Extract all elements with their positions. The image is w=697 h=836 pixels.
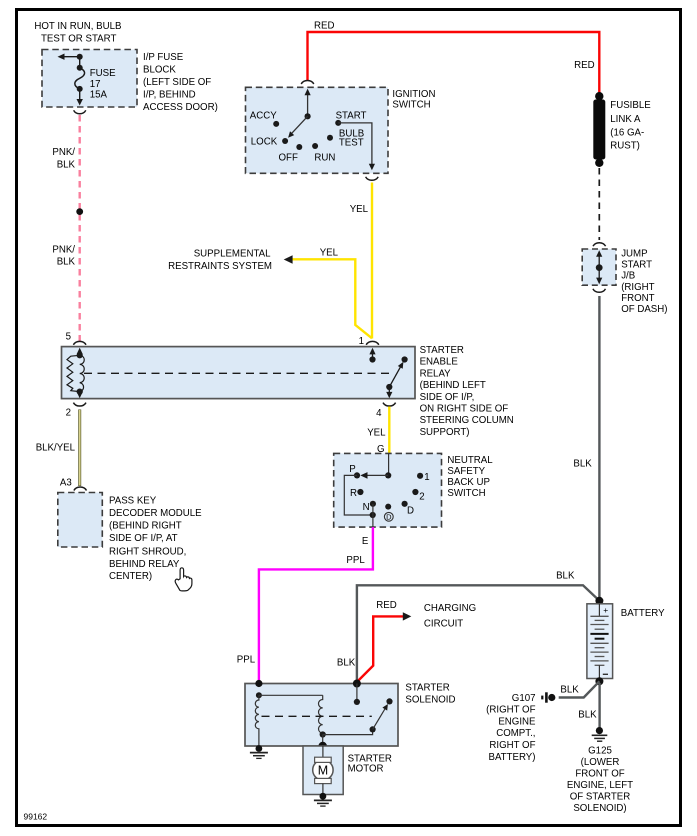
svg-text:R: R — [350, 488, 357, 499]
svg-text:(16 GA-: (16 GA- — [610, 127, 644, 138]
svg-text:PNK/: PNK/ — [52, 147, 75, 158]
svg-text:(LOWER: (LOWER — [581, 757, 620, 768]
svg-text:RED: RED — [376, 600, 396, 611]
svg-text:BLOCK: BLOCK — [143, 65, 176, 76]
svg-text:G107: G107 — [512, 693, 536, 704]
svg-text:(RIGHT: (RIGHT — [621, 282, 654, 293]
svg-text:CHARGING: CHARGING — [424, 603, 476, 614]
svg-text:DECODER MODULE: DECODER MODULE — [109, 508, 202, 519]
svg-text:ENGINE, LEFT: ENGINE, LEFT — [567, 780, 633, 791]
svg-text:BLK: BLK — [573, 459, 592, 470]
svg-text:M: M — [318, 763, 328, 777]
svg-text:D: D — [407, 506, 414, 517]
svg-text:SUPPLEMENTAL: SUPPLEMENTAL — [194, 248, 271, 259]
svg-text:YEL: YEL — [350, 204, 369, 215]
svg-text:JUMP: JUMP — [621, 249, 647, 260]
svg-text:4: 4 — [376, 408, 382, 419]
svg-text:SIDE OF I/P, AT: SIDE OF I/P, AT — [109, 533, 178, 544]
svg-text:BLK/YEL: BLK/YEL — [36, 442, 76, 453]
svg-text:(RIGHT OF: (RIGHT OF — [486, 705, 535, 716]
svg-text:RIGHT SHROUD,: RIGHT SHROUD, — [109, 546, 186, 557]
svg-text:2: 2 — [419, 492, 424, 503]
svg-text:SOLENOID: SOLENOID — [405, 694, 455, 705]
svg-text:SWITCH: SWITCH — [447, 488, 485, 499]
svg-text:IGNITION: IGNITION — [392, 89, 435, 100]
svg-text:1: 1 — [359, 336, 364, 347]
svg-text:RED: RED — [314, 21, 334, 32]
svg-text:RELAY: RELAY — [420, 368, 452, 379]
svg-text:RIGHT OF: RIGHT OF — [489, 740, 535, 751]
svg-text:SWITCH: SWITCH — [392, 100, 430, 111]
svg-text:BATTERY: BATTERY — [621, 608, 665, 619]
svg-text:PPL: PPL — [346, 555, 365, 566]
svg-text:START: START — [336, 110, 367, 121]
svg-text:N: N — [363, 502, 370, 513]
svg-text:PNK/: PNK/ — [52, 244, 75, 255]
svg-text:BEHIND RELAY: BEHIND RELAY — [109, 559, 180, 570]
svg-text:RUST): RUST) — [610, 141, 640, 152]
svg-text:99162: 99162 — [24, 812, 48, 822]
svg-text:FRONT OF: FRONT OF — [575, 769, 624, 780]
svg-text:2: 2 — [66, 408, 71, 419]
svg-text:BLK: BLK — [337, 658, 356, 669]
svg-text:STARTER: STARTER — [405, 683, 449, 694]
svg-text:BLK: BLK — [556, 570, 575, 581]
svg-text:LINK A: LINK A — [610, 114, 641, 125]
svg-text:OFF: OFF — [279, 152, 298, 163]
svg-text:FUSIBLE: FUSIBLE — [610, 100, 651, 111]
svg-text:CENTER): CENTER) — [109, 571, 152, 582]
svg-text:ENGINE: ENGINE — [498, 716, 536, 727]
svg-text:PASS KEY: PASS KEY — [109, 495, 157, 506]
svg-text:(BEHIND LEFT: (BEHIND LEFT — [420, 380, 486, 391]
svg-text:RUN: RUN — [314, 152, 335, 163]
svg-text:BLK: BLK — [57, 160, 76, 171]
svg-text:I/P, BEHIND: I/P, BEHIND — [143, 89, 196, 100]
svg-text:5: 5 — [66, 332, 71, 343]
svg-text:E: E — [362, 536, 369, 547]
svg-text:STARTER: STARTER — [420, 345, 464, 356]
svg-text:BATTERY): BATTERY) — [488, 752, 535, 763]
svg-text:(LEFT SIDE OF: (LEFT SIDE OF — [143, 77, 211, 88]
svg-text:FRONT: FRONT — [621, 293, 654, 304]
svg-text:SOLENOID): SOLENOID) — [573, 803, 626, 814]
svg-text:COMPT.,: COMPT., — [496, 728, 535, 739]
svg-text:RED: RED — [574, 60, 594, 71]
svg-text:1: 1 — [424, 472, 429, 483]
svg-text:STEERING COLUMN: STEERING COLUMN — [420, 415, 514, 426]
svg-text:A3: A3 — [60, 478, 72, 489]
svg-text:P: P — [349, 464, 355, 475]
svg-text:OF DASH): OF DASH) — [621, 304, 667, 315]
svg-text:17: 17 — [90, 79, 101, 90]
svg-text:ACCY: ACCY — [250, 110, 277, 121]
svg-text:BLK: BLK — [578, 709, 597, 720]
svg-text:OF STARTER: OF STARTER — [570, 792, 630, 803]
svg-text:BLK: BLK — [560, 685, 579, 696]
svg-text:LOCK: LOCK — [251, 137, 278, 148]
svg-text:SIDE OF I/P,: SIDE OF I/P, — [420, 392, 475, 403]
svg-text:TEST OR START: TEST OR START — [41, 34, 116, 45]
svg-text:G125: G125 — [588, 746, 612, 757]
svg-text:D: D — [386, 513, 392, 522]
svg-text:TEST: TEST — [339, 138, 364, 149]
svg-text:FUSE: FUSE — [90, 68, 116, 79]
svg-text:YEL: YEL — [320, 248, 339, 259]
svg-text:(BEHIND RIGHT: (BEHIND RIGHT — [109, 521, 182, 532]
svg-text:ACCESS DOOR): ACCESS DOOR) — [143, 102, 218, 113]
svg-text:ENABLE: ENABLE — [420, 357, 459, 368]
svg-text:PPL: PPL — [237, 654, 256, 665]
svg-text:YEL: YEL — [367, 428, 386, 439]
svg-text:SAFETY: SAFETY — [447, 466, 485, 477]
svg-text:+: + — [603, 605, 608, 615]
svg-text:HOT IN RUN, BULB: HOT IN RUN, BULB — [34, 21, 121, 32]
svg-text:MOTOR: MOTOR — [348, 764, 384, 775]
svg-text:BACK UP: BACK UP — [447, 477, 490, 488]
svg-text:NEUTRAL: NEUTRAL — [447, 455, 493, 466]
svg-text:ON RIGHT SIDE OF: ON RIGHT SIDE OF — [420, 404, 509, 415]
svg-text:J/B: J/B — [621, 271, 635, 282]
svg-text:SUPPORT): SUPPORT) — [420, 427, 470, 438]
svg-text:BLK: BLK — [57, 257, 76, 268]
svg-text:CIRCUIT: CIRCUIT — [424, 619, 463, 630]
svg-text:RESTRAINTS SYSTEM: RESTRAINTS SYSTEM — [168, 261, 272, 272]
svg-text:15A: 15A — [90, 90, 108, 101]
svg-text:I/P FUSE: I/P FUSE — [143, 52, 184, 63]
svg-text:START: START — [621, 260, 652, 271]
